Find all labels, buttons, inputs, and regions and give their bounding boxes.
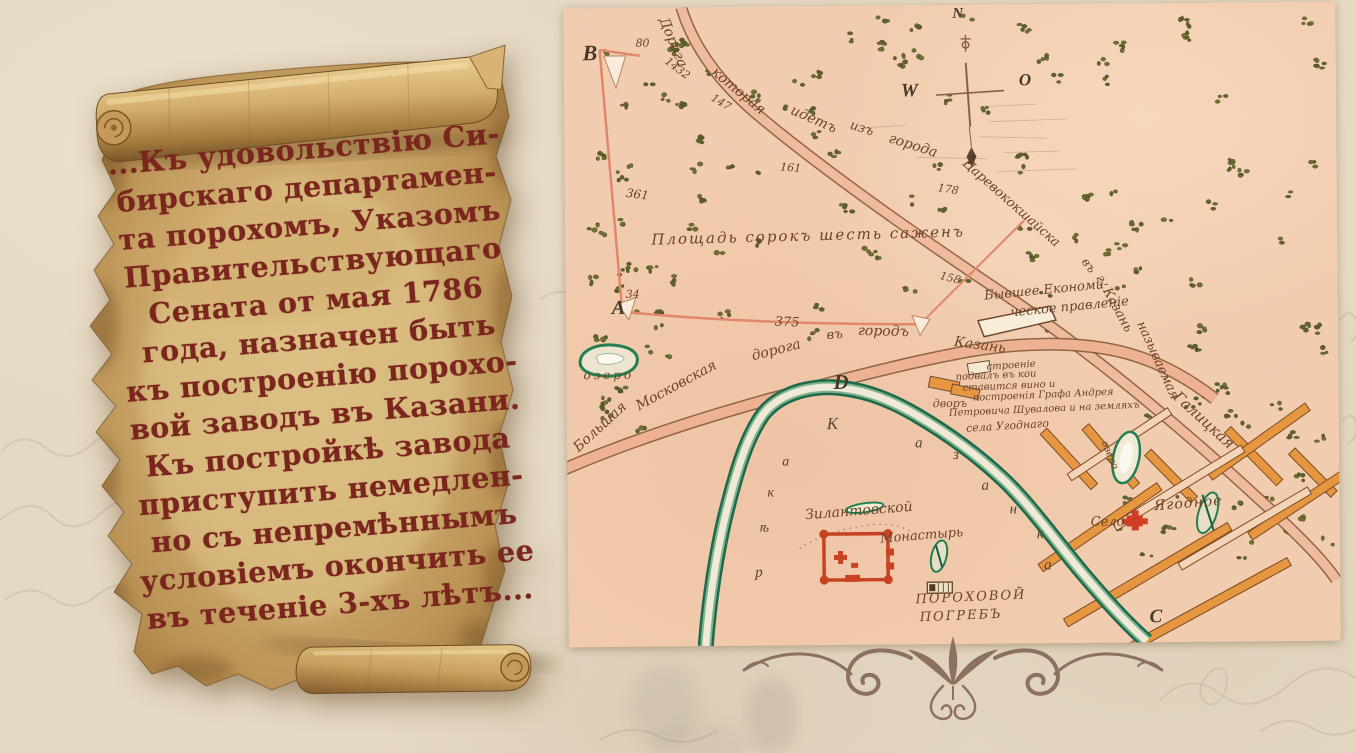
- map-label: Большая: [571, 400, 629, 455]
- map-label: идетъ: [788, 103, 838, 135]
- map-label: W: [901, 81, 918, 100]
- map-label: Дорога: [656, 15, 689, 69]
- map-label: С: [1149, 607, 1162, 626]
- map-label: O: [1019, 71, 1031, 88]
- scroll-text: ...Къ удовольствію Си-бирскаго департаме…: [97, 113, 547, 638]
- map-label: города: [887, 132, 939, 160]
- parchment-scroll: ...Къ удовольствію Си-бирскаго департаме…: [10, 8, 566, 744]
- map-label: 161: [780, 161, 802, 174]
- map-label: Московская: [634, 358, 719, 413]
- map-label: которая: [709, 65, 768, 117]
- map-label: изъ: [848, 119, 875, 139]
- map-label: озеро: [1099, 440, 1120, 471]
- map-label: к: [767, 487, 774, 501]
- map-label: 147: [709, 92, 733, 112]
- map-label: въ: [1080, 256, 1098, 275]
- map-label: села Угоднаго: [966, 418, 1049, 434]
- map-label: Село: [1091, 516, 1125, 529]
- map-label: а: [915, 436, 923, 451]
- map-label: а: [981, 479, 989, 494]
- map-label: 80: [635, 38, 649, 49]
- map-label: ѣ: [760, 522, 769, 536]
- map-label: а: [1044, 558, 1052, 573]
- map-label: 361: [625, 187, 649, 202]
- map-label: городъ: [858, 324, 909, 339]
- map-label: Царевококшайска: [960, 157, 1062, 250]
- map-label: Монастырь: [880, 526, 964, 545]
- map-label: В: [583, 42, 598, 64]
- map-label: Ягодное: [1154, 494, 1224, 513]
- map-label: Галицкая: [1170, 389, 1236, 452]
- map-label: 178: [937, 182, 960, 196]
- map-label: ПОРОХОВОЙ: [915, 588, 1026, 606]
- map-label: н: [1010, 502, 1018, 517]
- divider-flourish-icon: [738, 634, 1168, 734]
- historic-map: ВАDСWNOZ80143214736116117834375158Площад…: [563, 2, 1341, 648]
- map-label: D: [833, 372, 848, 393]
- map-label: N: [952, 7, 963, 22]
- map-label: з: [953, 448, 959, 463]
- slide-canvas: { "scroll": { "lines": [ "...Къ удовольс…: [0, 0, 1356, 753]
- map-label: р: [755, 566, 763, 581]
- map-label: въ: [826, 328, 843, 342]
- map-label: называемая: [1134, 319, 1181, 401]
- map-label: озеро: [583, 369, 634, 381]
- map-label: ПОГРЕБЪ: [920, 608, 1003, 625]
- map-label: Площадь сорокъ шесть саженъ: [651, 224, 965, 247]
- map-label: 34: [626, 289, 640, 300]
- map-label: Зилантовской: [805, 500, 914, 522]
- map-label: к: [1037, 527, 1044, 542]
- map-label: 375: [774, 316, 799, 330]
- map-label: Казань: [953, 335, 1006, 356]
- map-label: А: [612, 298, 626, 318]
- map-label: 158: [939, 270, 962, 286]
- map-label: К: [827, 415, 838, 432]
- map-label: а: [782, 455, 789, 469]
- map-label: дорога: [750, 337, 802, 363]
- map-labels: ВАDСWNOZ80143214736116117834375158Площад…: [563, 2, 1341, 648]
